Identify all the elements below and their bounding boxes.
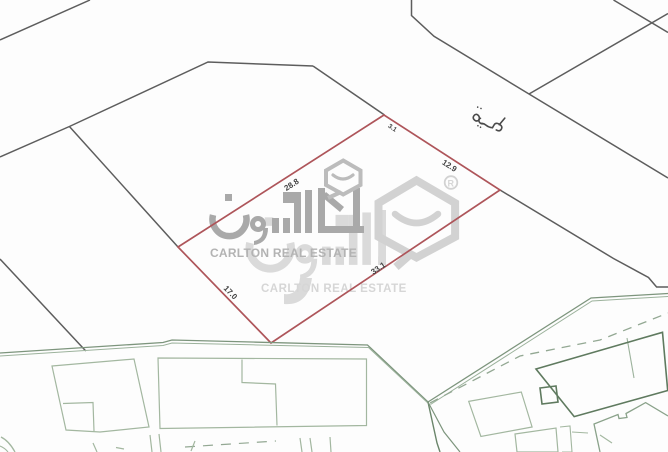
- svg-text:CARLTON REAL ESTATE: CARLTON REAL ESTATE: [210, 246, 357, 260]
- svg-text:R: R: [448, 179, 455, 189]
- svg-text:CARLTON REAL ESTATE: CARLTON REAL ESTATE: [261, 283, 407, 295]
